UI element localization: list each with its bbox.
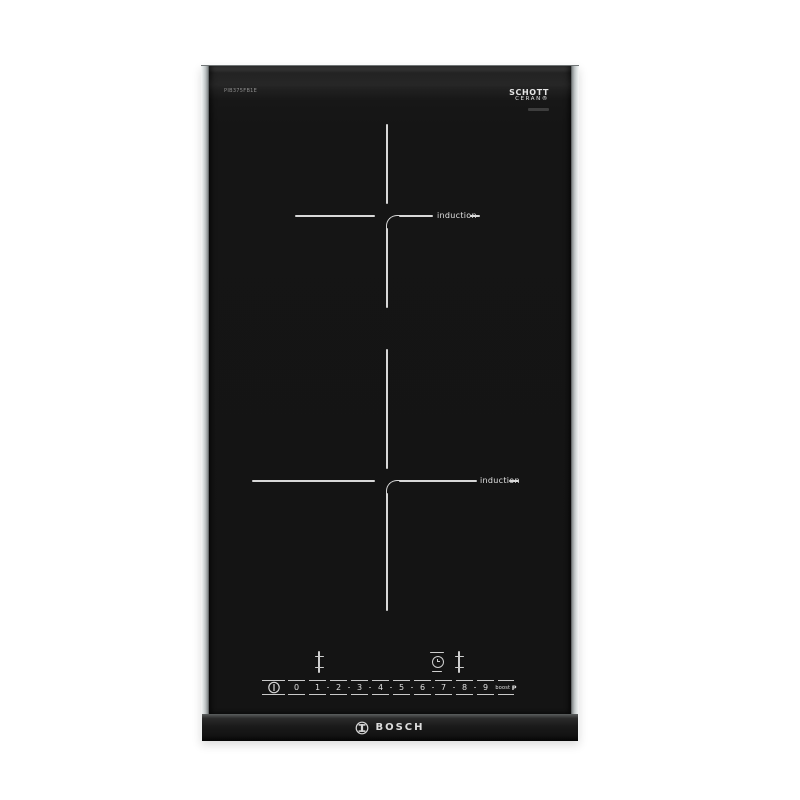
boost-key[interactable]: boost P [498, 680, 514, 695]
zone1-cross-bottom [386, 228, 388, 308]
zone1-cross-right [399, 215, 433, 217]
zone2-cross-corner [386, 480, 400, 494]
zone2-cross-dash [509, 480, 519, 482]
level-separator-dot [368, 680, 372, 695]
zone2-cross-right [399, 480, 477, 482]
level-key-6[interactable]: 6 [414, 680, 431, 695]
glass-marking-smalltext [528, 108, 549, 111]
right-metal-trim [571, 66, 579, 741]
directselect-control-strip: 0 1 2 3 4 5 6 7 8 9 [262, 680, 514, 695]
level-key-4[interactable]: 4 [372, 680, 389, 695]
model-number-print: PIB375FB1E [224, 88, 257, 94]
level-key-2[interactable]: 2 [330, 680, 347, 695]
level-separator-dot [347, 680, 351, 695]
level-key-0[interactable]: 0 [288, 680, 305, 695]
level-separator-dot [431, 680, 435, 695]
schott-ceran-logo: SCHOTT CERAN® [509, 89, 549, 111]
zone1-select-icon[interactable] [314, 651, 324, 673]
zone2-cross-left [252, 480, 375, 482]
zone1-cross-corner [386, 215, 400, 229]
zone1-cross-left [295, 215, 375, 217]
product-photo: PIB375FB1E SCHOTT CERAN® induction induc… [0, 0, 800, 800]
level-separator-dot [389, 680, 393, 695]
strip-gap [285, 680, 288, 695]
zone2-select-icon[interactable] [454, 651, 464, 673]
level-key-1[interactable]: 1 [309, 680, 326, 695]
level-key-7[interactable]: 7 [435, 680, 452, 695]
level-separator-dot [473, 680, 477, 695]
zone1-cross-top [386, 124, 388, 204]
left-metal-trim [201, 66, 209, 741]
power-key[interactable] [262, 680, 285, 695]
timer-clock-icon[interactable] [429, 651, 445, 673]
induction-hob: PIB375FB1E SCHOTT CERAN® induction induc… [201, 65, 579, 741]
level-separator-dot [410, 680, 414, 695]
bosch-logo-text: BOSCH [375, 723, 424, 733]
level-key-9[interactable]: 9 [477, 680, 494, 695]
strip-gap [305, 680, 309, 695]
bosch-armature-icon [355, 721, 369, 735]
schott-logo-line2: CERAN® [509, 97, 549, 103]
zone1-cross-dash [470, 215, 480, 217]
level-key-5[interactable]: 5 [393, 680, 410, 695]
power-standby-icon [267, 681, 281, 694]
front-edge-bar: BOSCH [202, 714, 578, 741]
level-key-8[interactable]: 8 [456, 680, 473, 695]
boost-symbol: P [512, 684, 517, 692]
level-separator-dot [326, 680, 330, 695]
strip-gap [494, 680, 498, 695]
zone2-cross-bottom [386, 493, 388, 611]
zone2-cross-top [386, 349, 388, 469]
level-separator-dot [452, 680, 456, 695]
ceran-glass-surface: PIB375FB1E SCHOTT CERAN® induction induc… [209, 66, 571, 714]
level-key-3[interactable]: 3 [351, 680, 368, 695]
